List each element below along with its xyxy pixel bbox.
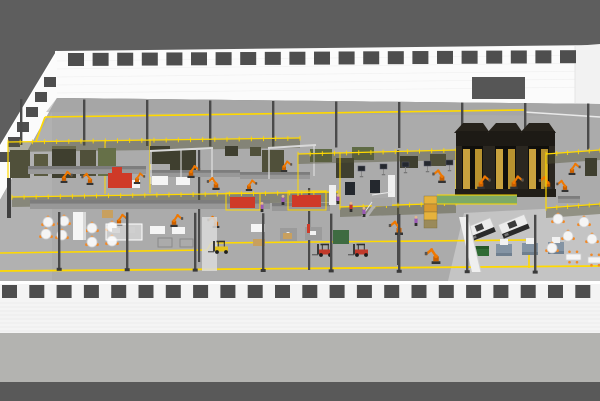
outside-apron [0, 333, 600, 382]
robot-elbow [394, 221, 397, 224]
chair [576, 251, 579, 254]
front-wall-window [2, 285, 17, 298]
monitor-screen [402, 162, 409, 167]
robot-wrist [290, 163, 292, 165]
front-wall-window [220, 285, 235, 298]
robot-shoulder [63, 176, 66, 179]
worker [281, 195, 284, 205]
forklift-wheel [355, 253, 359, 257]
robot-shoulder [248, 184, 251, 187]
robot-wrist [181, 217, 183, 220]
column-foot [329, 269, 334, 272]
robot-base [438, 181, 446, 183]
crate [424, 196, 437, 204]
robot-shoulder [136, 177, 139, 180]
column-shaft [398, 214, 400, 272]
person-head [337, 194, 340, 197]
left-wall-window [26, 107, 38, 117]
green-bin-top [474, 246, 489, 249]
robot-elbow [251, 179, 253, 181]
monitor-base [382, 174, 385, 175]
front-wall-window [275, 285, 290, 298]
press-frame [522, 146, 528, 191]
table-top [41, 229, 51, 239]
press-column [463, 149, 470, 189]
back-wall-window [412, 51, 428, 64]
column-foot [465, 270, 470, 273]
back-wall-window [216, 52, 232, 65]
robot-elbow [85, 173, 87, 175]
chair [568, 261, 571, 264]
stand-box [500, 239, 508, 245]
robot-base [246, 189, 252, 191]
column-shaft [194, 213, 196, 271]
roof-column [335, 102, 337, 148]
conveyor-edge [150, 170, 240, 173]
conveyor-edge [240, 172, 310, 175]
robot-wrist [81, 176, 83, 179]
robot-wrist [255, 182, 257, 184]
roof-column [83, 100, 85, 146]
machine-cabinet [262, 150, 284, 172]
outside-ground [0, 382, 600, 401]
person-legs [282, 202, 285, 205]
robot-shoulder [172, 219, 175, 222]
front-wall-top [0, 281, 600, 284]
machine-cabinet [10, 150, 30, 178]
front-wall-window [57, 285, 72, 298]
roof-column [146, 100, 148, 146]
robot-elbow [437, 169, 440, 172]
robot-wrist [207, 180, 209, 183]
stand-box [552, 237, 560, 243]
chair [590, 254, 593, 257]
partition-panel [388, 175, 395, 197]
press-column [529, 149, 536, 189]
column-shaft [58, 212, 60, 270]
person-head [350, 202, 353, 205]
table-top [43, 217, 53, 227]
mat-item [112, 228, 120, 233]
work-table [176, 177, 190, 185]
robot-base [562, 190, 569, 192]
back-wall-window [511, 50, 527, 63]
crate [424, 212, 437, 220]
press-base [521, 189, 556, 197]
chair [576, 261, 579, 264]
press-top [489, 131, 522, 146]
person-legs [337, 201, 340, 204]
person-torso [281, 198, 284, 202]
back-wall-window [289, 52, 305, 65]
column-shaft [330, 214, 332, 272]
robot-shoulder [118, 219, 121, 222]
robot-wrist [539, 179, 541, 182]
back-wall-window [93, 53, 109, 66]
robot-wrist [432, 173, 434, 176]
belt [437, 195, 517, 204]
table-top [587, 234, 597, 244]
machine-cabinet-top [52, 146, 76, 149]
roof-column [398, 102, 400, 148]
chair [590, 264, 593, 267]
factory-3d-scene [0, 0, 600, 401]
person-legs [415, 223, 418, 226]
robot-base [212, 188, 219, 190]
robot-wrist [521, 179, 523, 182]
person-torso [414, 219, 417, 223]
robot-shoulder [214, 182, 217, 185]
back-wall-window [437, 51, 453, 64]
robot-wrist [556, 183, 558, 186]
robot-shoulder [283, 165, 286, 168]
robot-base [510, 187, 518, 189]
robot-shoulder [546, 181, 549, 184]
stamping-press[interactable] [487, 123, 523, 197]
front-wall-window [166, 285, 181, 298]
robot-base [477, 187, 485, 189]
column-foot [57, 268, 62, 271]
front-wall-window [139, 285, 154, 298]
robot-base [281, 170, 287, 172]
monitor-base [360, 176, 363, 177]
robot-shoulder [440, 175, 443, 178]
worker [260, 202, 263, 212]
press-frame [489, 146, 495, 191]
floor-mat [106, 224, 142, 240]
monitor-screen [446, 160, 453, 165]
work-table [152, 176, 168, 185]
robot-shoulder [89, 178, 92, 181]
gray-mat-item [310, 231, 316, 235]
robot-shoulder [564, 185, 567, 188]
back-wall-window [314, 52, 330, 65]
table-top [553, 214, 563, 224]
robot-shoulder [434, 254, 438, 258]
forklift-mast [353, 244, 355, 255]
left-wall-window [0, 152, 11, 162]
robot-wrist [389, 224, 391, 227]
monitor-post [405, 167, 406, 172]
forklift-mast [317, 244, 319, 255]
monitor-screen [424, 161, 431, 166]
back-wall-window [486, 51, 502, 64]
conveyor-edge [28, 166, 146, 169]
conveyor-edge [558, 196, 580, 199]
person-torso [349, 205, 352, 209]
forklift-wheel [224, 250, 228, 254]
robot-base [87, 183, 94, 185]
red-machine [108, 173, 132, 188]
back-wall-window [240, 52, 256, 65]
column-shaft [262, 213, 264, 271]
front-wall-window [193, 285, 208, 298]
control-panel [370, 180, 380, 193]
monitor-base [448, 170, 451, 171]
worker [336, 194, 339, 204]
white-cabinet-shade [83, 212, 86, 240]
column-foot [261, 269, 266, 272]
person-torso [336, 197, 339, 201]
crate-stack[interactable] [424, 196, 437, 228]
robot-base [61, 181, 68, 183]
back-wall-window [462, 51, 478, 64]
control-panel [345, 182, 355, 195]
forklift-roof [217, 241, 226, 243]
table-top [59, 216, 69, 226]
worker [349, 202, 352, 212]
column-shaft [126, 212, 128, 270]
roof-column [20, 99, 22, 145]
back-wall-window [166, 52, 182, 65]
robot-wrist [71, 174, 73, 177]
robot-elbow [543, 176, 546, 179]
robot-wrist [143, 175, 145, 177]
front-wall-window [521, 285, 536, 298]
robot-elbow [560, 180, 562, 182]
robot-elbow [286, 160, 288, 162]
person-legs [261, 209, 264, 212]
robot-shoulder [571, 168, 574, 171]
robot-wrist [579, 166, 581, 169]
wood-pallet [102, 210, 113, 218]
table-top [547, 243, 557, 253]
column-foot [193, 269, 198, 272]
roof-column [587, 104, 589, 150]
person-head [363, 207, 366, 210]
robot-elbow [139, 172, 141, 174]
forklift-wheel [215, 250, 219, 254]
loading-door [472, 77, 525, 99]
front-wall-window [302, 285, 317, 298]
monitor-screen [358, 166, 365, 171]
column-shaft [466, 214, 468, 272]
robot-elbow [211, 177, 214, 180]
robot-elbow [121, 214, 123, 216]
robot-elbow [66, 171, 68, 173]
robot-elbow [516, 175, 519, 178]
press-column [496, 149, 503, 189]
front-wall-window [248, 285, 263, 298]
front-wall-window [384, 285, 399, 298]
back-wall-window [142, 53, 158, 66]
monitor-base [404, 172, 407, 173]
back-wall-window [363, 51, 379, 64]
machine-cabinet [225, 146, 238, 156]
worker [362, 207, 365, 217]
person-head [282, 195, 285, 198]
forklift-wheel [319, 253, 323, 257]
back-wall-window [117, 53, 133, 66]
person-legs [350, 209, 353, 212]
conveyor [28, 166, 146, 174]
monitor-screen [380, 164, 387, 169]
machine-cabinet [585, 158, 597, 176]
back-wall-window [339, 51, 355, 64]
left-wall-window [17, 122, 29, 132]
table-top [579, 217, 589, 227]
press-frame [483, 146, 489, 191]
back-wall-window [68, 53, 84, 66]
factory-layout-viewport[interactable] [0, 0, 600, 401]
front-wall-window [330, 285, 345, 298]
press-frame [456, 146, 462, 191]
conveyor [150, 170, 240, 177]
work-table [150, 226, 165, 234]
monitor-post [449, 165, 450, 170]
red-machine [292, 195, 321, 207]
front-wall-window [493, 285, 508, 298]
machine-cabinet [150, 146, 170, 164]
robot-elbow [176, 214, 179, 217]
forklift-mast [213, 241, 215, 252]
back-wall-right [575, 44, 600, 104]
table-top [563, 231, 573, 241]
robot-shoulder [512, 181, 515, 184]
table-top [87, 223, 97, 233]
front-wall-window [575, 285, 590, 298]
monitor-post [361, 171, 362, 176]
person-torso [362, 210, 365, 214]
monitor-post [383, 169, 384, 174]
column-foot [125, 268, 130, 271]
table-top [588, 257, 600, 263]
press-top [456, 131, 489, 146]
red-machine-arm [112, 167, 122, 174]
front-wall-window [357, 285, 372, 298]
cabinet-green [333, 230, 349, 244]
column-foot [533, 271, 538, 274]
chair [568, 251, 571, 254]
forklift-roof [357, 244, 366, 246]
press-conveyor [437, 195, 517, 204]
front-wall-window [111, 285, 126, 298]
front-wall-window [84, 285, 99, 298]
left-wall-window [44, 77, 56, 87]
robot-elbow [574, 163, 576, 165]
dark-post [7, 178, 11, 218]
press-frame [516, 146, 522, 191]
stairs-platform [372, 198, 392, 206]
forklift-roof [321, 244, 330, 246]
conveyor [558, 196, 580, 203]
work-table [172, 227, 185, 234]
back-wall-window [560, 50, 576, 63]
back-wall-window [265, 52, 281, 65]
machine-cabinet [250, 147, 261, 156]
front-wall-window [439, 285, 454, 298]
robot-elbow [483, 175, 486, 178]
monitor-post [427, 166, 428, 171]
robot-wrist [488, 179, 490, 182]
robot-base [170, 225, 177, 227]
red-machine [230, 197, 255, 208]
back-wall-window [388, 51, 404, 64]
column-shaft [534, 215, 536, 273]
partition-panel [329, 185, 336, 205]
column-foot [397, 270, 402, 273]
table-top [87, 237, 97, 247]
stand-box [526, 238, 534, 244]
stamping-press[interactable] [454, 123, 490, 197]
robot-base [187, 176, 194, 178]
conveyor [240, 172, 310, 179]
stand-top [496, 244, 512, 253]
person-legs [363, 214, 366, 217]
robot-base [432, 261, 441, 264]
front-wall-window [412, 285, 427, 298]
person-head [415, 216, 418, 219]
robot-elbow [193, 165, 196, 168]
robot-shoulder [189, 170, 192, 173]
fire-extinguisher [307, 224, 310, 233]
robot-base [134, 182, 140, 184]
machine-cabinet [430, 154, 446, 166]
front-wall-window [29, 285, 44, 298]
robot-wrist [425, 252, 428, 255]
robot-wrist [198, 168, 200, 171]
table-top [566, 254, 581, 260]
robot-shoulder [479, 181, 482, 184]
back-wall-window [191, 52, 207, 65]
robot-base [569, 173, 576, 175]
front-wall-window [466, 285, 481, 298]
front-wall-window [548, 285, 563, 298]
person-torso [260, 205, 263, 209]
monitor-base [426, 171, 429, 172]
press-top [522, 131, 555, 146]
person-head [261, 202, 264, 205]
robot-elbow [430, 248, 433, 251]
crate [424, 220, 437, 228]
left-wall-window [35, 92, 47, 102]
forklift-wheel [364, 253, 368, 257]
worker [414, 216, 417, 226]
back-wall-window [535, 50, 551, 63]
wood-pallet [283, 233, 292, 239]
crate [424, 204, 437, 212]
